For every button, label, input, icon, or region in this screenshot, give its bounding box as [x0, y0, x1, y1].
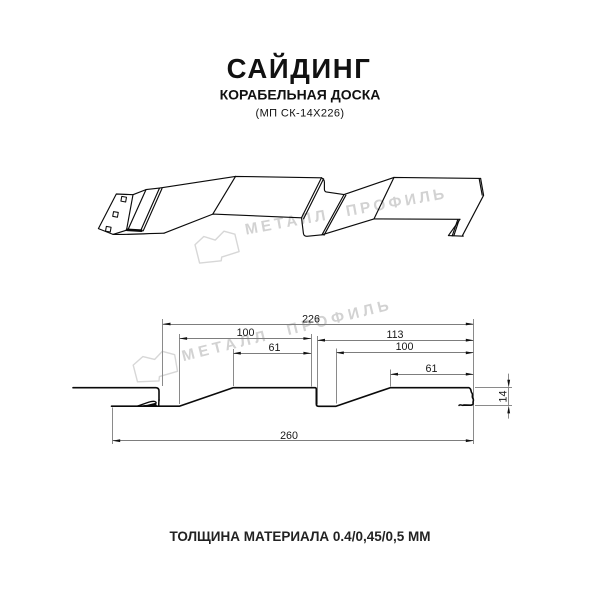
svg-text:61: 61: [426, 363, 438, 375]
svg-text:61: 61: [269, 342, 281, 354]
svg-text:КОРАБЕЛЬНАЯ ДОСКА: КОРАБЕЛЬНАЯ ДОСКА: [220, 87, 381, 103]
svg-text:САЙДИНГ: САЙДИНГ: [227, 53, 372, 84]
svg-text:ТОЛЩИНА МАТЕРИАЛА 0.4/0,45/0,5: ТОЛЩИНА МАТЕРИАЛА 0.4/0,45/0,5 ММ: [170, 529, 431, 544]
svg-text:226: 226: [302, 313, 320, 325]
svg-text:(МП СК-14Х226): (МП СК-14Х226): [256, 108, 345, 120]
svg-text:113: 113: [386, 329, 403, 341]
svg-text:100: 100: [396, 341, 414, 353]
svg-text:100: 100: [237, 327, 255, 339]
svg-text:260: 260: [280, 430, 298, 442]
svg-text:14: 14: [497, 391, 509, 403]
